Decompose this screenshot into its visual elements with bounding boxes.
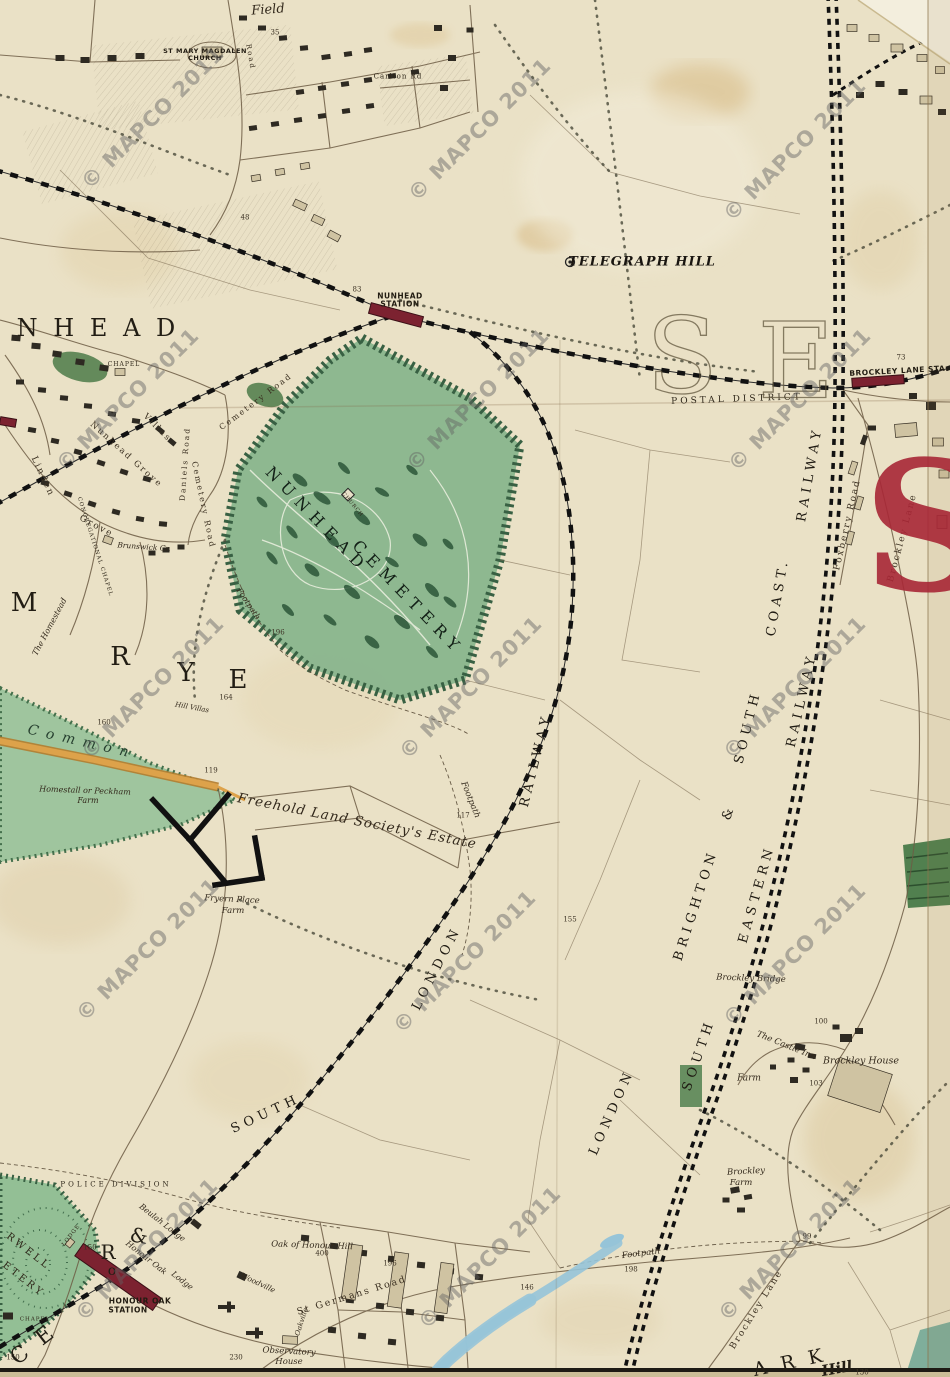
num-150a: 150 <box>83 1245 96 1252</box>
foxberry-road-label: Foxberry Road <box>833 479 863 572</box>
num-146: 146 <box>520 1285 533 1292</box>
farm-label: Farm <box>737 1075 761 1084</box>
mapco-watermark-2: © MAPCO 2011 <box>405 55 556 206</box>
num-35: 35 <box>271 30 280 37</box>
se-letter-s-outline: S <box>646 305 720 410</box>
num-198: 198 <box>624 1267 637 1274</box>
nunhead-station-label-2: STATION <box>380 300 419 308</box>
lbscr-label-london: LONDON <box>587 1067 637 1157</box>
mapco-watermark-7: © MAPCO 2011 <box>78 613 229 764</box>
villas-label: Villas <box>141 412 172 443</box>
cemetery-church-label: CHURCH <box>340 492 363 518</box>
lbscr-label-coast: COAST. <box>765 557 792 638</box>
rye-letter-e: E <box>229 667 252 693</box>
mapco-watermark-11: © MAPCO 2011 <box>390 887 541 1038</box>
cemetery-road-label-2: Cemetery Road <box>190 461 216 549</box>
mapco-watermark-1: © MAPCO 2011 <box>78 43 229 194</box>
num-164: 164 <box>219 695 232 702</box>
chapel-label-1: CHAPEL <box>108 362 141 368</box>
frag-hill: Hill <box>820 1359 853 1377</box>
congregational-chapel-label: CONGREGATIONAL CHAPEL <box>75 497 112 598</box>
field-label: Field <box>251 2 285 17</box>
south-london-railway-label-3: RAILWAY <box>518 711 554 808</box>
brockley-farm-label-1: Brockley <box>727 1167 765 1177</box>
mapco-watermark-14: © MAPCO 2011 <box>415 1183 566 1334</box>
freehold-estate-label: Freehold Land Society's Estate <box>236 792 478 852</box>
num-100: 100 <box>814 1019 827 1026</box>
honour-oak-station-label-1: HONOUR OAK <box>109 1297 172 1305</box>
rye-letter-m: M <box>11 590 42 616</box>
map-labels: FieldST MARY MAGDALENCHURCHRoadCarlton R… <box>0 0 950 1377</box>
num-155: 155 <box>563 917 576 924</box>
st-germans-road-label: St Germans Road <box>296 1275 408 1318</box>
oak-of-honour-hill-label: Oak of Honour Hill <box>271 1240 353 1251</box>
police-division-label: POLICE DIVISION <box>60 1182 171 1189</box>
honour-oak-lodge-label-2: Lodge <box>170 1270 195 1292</box>
brunswick-cr-label: Brunswick Cr. <box>117 541 171 552</box>
mapco-watermark-5: © MAPCO 2011 <box>403 325 554 476</box>
cemetery-lodge-label: LODGE <box>62 1224 82 1248</box>
num-103: 103 <box>809 1081 822 1088</box>
num-48: 48 <box>241 215 250 222</box>
frag-letter-r: R <box>100 1242 119 1262</box>
honour-oak-station-label-2: STATION <box>108 1306 147 1314</box>
mapco-watermark-15: © MAPCO 2011 <box>715 1175 866 1326</box>
observatory-house-label-2: House <box>275 1358 302 1367</box>
mapco-watermark-3: © MAPCO 2011 <box>720 75 871 226</box>
castle-inn-label: The Castle Inn <box>755 1030 817 1061</box>
ser-label-eastern: EASTERN <box>737 843 778 945</box>
telegraph-hill-label: TELEGRAPH HILL <box>568 256 716 269</box>
unhead-district-letters: U N H E A D <box>0 316 179 340</box>
se-red-letter-s: S <box>863 438 950 618</box>
fryern-place-farm-label-2: Farm <box>222 907 245 916</box>
num-196-road: 196 <box>383 1261 396 1268</box>
lbscr-label-brighton: BRIGHTON <box>672 847 720 962</box>
num-230: 230 <box>229 1355 242 1362</box>
brockley-lane-sta-label: BROCKLEY LANE STA. <box>849 365 949 378</box>
mapco-watermark-8: © MAPCO 2011 <box>396 613 547 764</box>
num-83: 83 <box>353 287 362 294</box>
carlton-rd-label: Carlton Rd <box>374 74 423 81</box>
lbscr-label-railway: RAILWAY <box>795 425 825 523</box>
map-canvas: FieldST MARY MAGDALENCHURCHRoadCarlton R… <box>0 0 950 1377</box>
num-196-cemetery: 196 <box>271 630 284 637</box>
brockley-house-label: Brockley House <box>823 1056 899 1066</box>
woodville-label: Woodville <box>240 1272 277 1294</box>
num-400: 400 <box>315 1251 328 1258</box>
num-119: 119 <box>204 768 217 775</box>
mapco-watermark-12: © MAPCO 2011 <box>720 880 871 1031</box>
lbscr-label-ampersand: & <box>720 802 737 822</box>
mapco-watermark-10: © MAPCO 2011 <box>73 875 224 1026</box>
nunhead-cemetery-label-2: CEMETERY <box>349 538 466 659</box>
rye-letter-r: R <box>110 644 134 670</box>
homestall-farm-label-1: Homestall or Peckham <box>39 785 131 796</box>
frag-ce: C E <box>7 1320 61 1369</box>
num-117: 117 <box>456 813 469 820</box>
south-london-railway-label-1: SOUTH <box>229 1092 303 1136</box>
ser-label-south: SOUTH <box>681 1017 718 1093</box>
brockley-farm-label-2: Farm <box>730 1179 753 1188</box>
cemetery-road-label-1: Cemetery Road <box>218 372 294 432</box>
num-130: 130 <box>855 1370 868 1377</box>
road-label-nw: Road <box>244 44 255 71</box>
homestall-farm-label-2: Farm <box>77 797 98 805</box>
nunhead-cemetery-label-1: NUNHEAD <box>262 464 371 576</box>
num-73: 73 <box>897 355 906 362</box>
footpath-label-3: Footpath <box>621 1247 660 1260</box>
linden-grove-label-1: Linden <box>29 455 56 498</box>
frag-ark: A R K <box>752 1346 829 1377</box>
footpath-label-1: Footpath <box>235 587 262 622</box>
hill-villas-label: Hill Villas <box>174 702 209 715</box>
